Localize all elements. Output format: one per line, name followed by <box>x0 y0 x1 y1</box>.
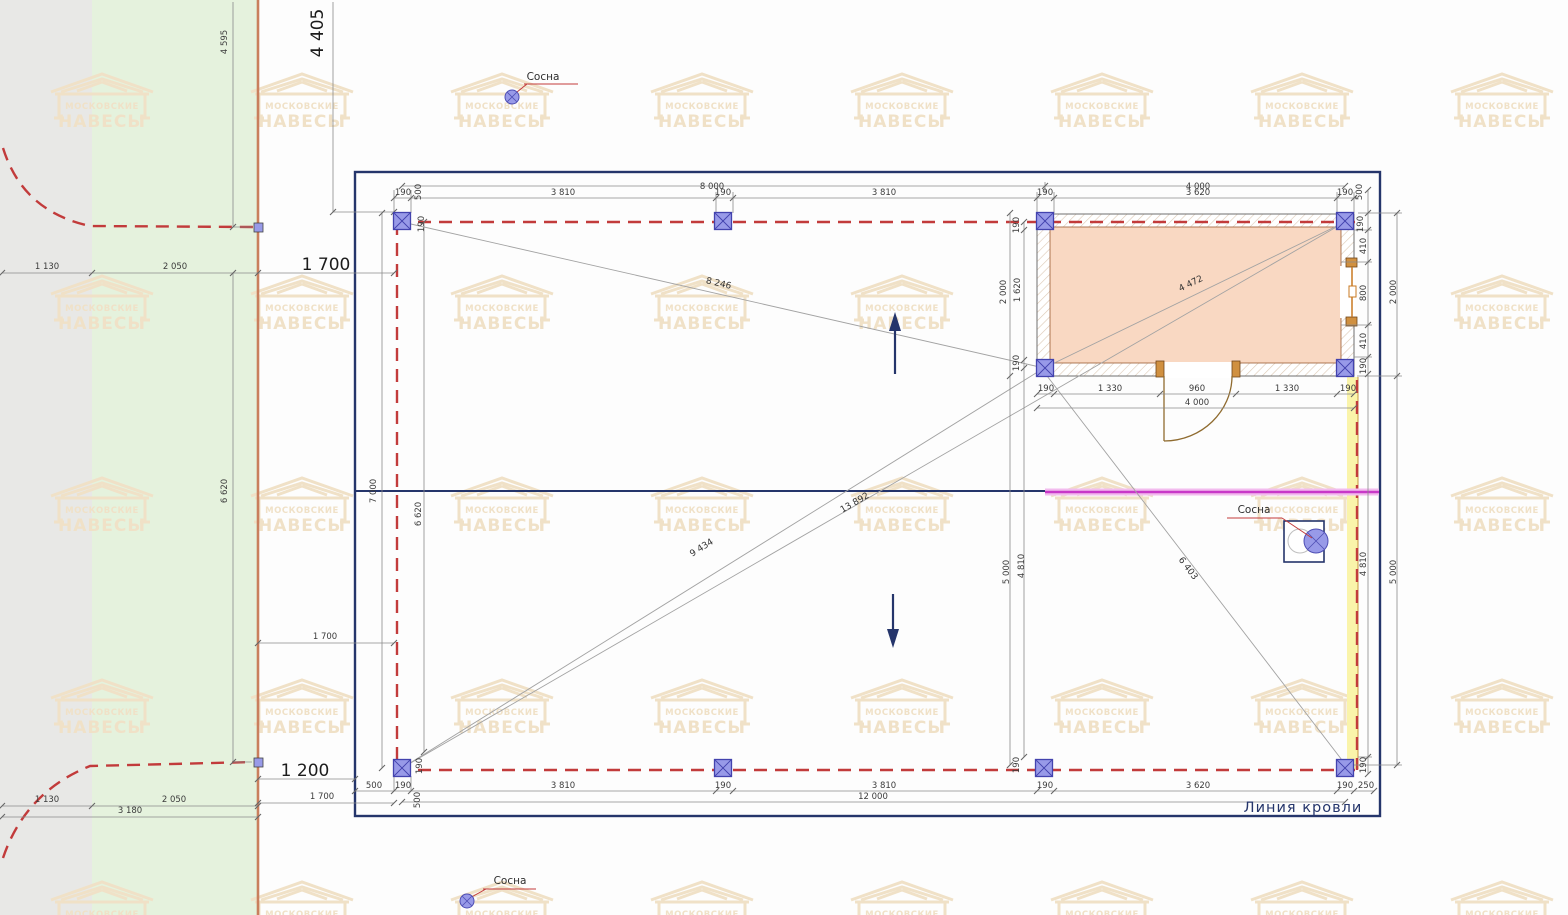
dim-label: 1 620 <box>1013 278 1023 302</box>
dim-label: 190 <box>1337 188 1353 198</box>
dim-label: 4 595 <box>220 30 230 54</box>
dim-label: 410 <box>1359 333 1369 349</box>
dim-label: 1 700 <box>313 632 337 642</box>
diagonal-label: 8 246 <box>705 276 733 292</box>
dim-label: 2 000 <box>1389 280 1399 304</box>
dim-label: 800 <box>1359 285 1369 301</box>
dim-label: 1 330 <box>1098 384 1122 394</box>
down-arrow-head <box>887 629 899 648</box>
dim-label: 410 <box>1359 238 1369 254</box>
tree-label-middle: Сосна <box>1238 504 1271 516</box>
tree-bottom: Сосна <box>460 875 536 908</box>
dim-label: 190 <box>417 216 427 232</box>
dim-label: 190 <box>1012 757 1022 773</box>
dim-label: 3 810 <box>551 188 575 198</box>
dim-label: 500 <box>1355 184 1365 200</box>
diagonal-label: 6 403 <box>1176 555 1199 582</box>
dim-label: 6 620 <box>220 479 230 503</box>
dim-label: 500 <box>413 792 423 808</box>
dim-label: 190 <box>1012 217 1022 233</box>
dim-label: 2 000 <box>999 280 1009 304</box>
dimension-labels: 8 000 4 000 190 3 810 190 3 810 190 3 62… <box>35 9 1399 816</box>
dim-label: 190 <box>395 781 411 791</box>
tree-top: Сосна <box>505 71 578 104</box>
diagonal-label: 9 434 <box>688 537 715 559</box>
dim-label: 960 <box>1189 384 1205 394</box>
dim-label: 190 <box>1012 355 1022 371</box>
dim-label: 4 405 <box>308 9 328 58</box>
dim-label: 3 620 <box>1186 188 1210 198</box>
dim-label: 190 <box>415 758 425 774</box>
dim-label: 3 810 <box>872 188 896 198</box>
dim-label: 1 130 <box>35 262 59 272</box>
tree-middle: Сосна <box>1227 504 1328 562</box>
dim-label: 250 <box>1358 781 1374 791</box>
dim-label: 190 <box>1037 781 1053 791</box>
door-jamb-left <box>1156 361 1164 377</box>
tree-label-top: Сосна <box>527 71 560 83</box>
dim-label: 190 <box>1359 757 1369 773</box>
dim-label: 7 000 <box>369 479 379 503</box>
dim-label: 12 000 <box>858 792 888 802</box>
dim-label: 4 000 <box>1185 398 1209 408</box>
dim-label: 2 050 <box>162 795 186 805</box>
up-arrow-head <box>889 312 901 331</box>
dim-label: 5 000 <box>1389 560 1399 584</box>
site-plan-canvas: МОСКОВСКИЕНАВЕСЫМОСКОВСКИЕНАВЕСЫМОСКОВСК… <box>0 0 1568 915</box>
dim-label: 1 130 <box>35 795 59 805</box>
dim-label: 1 330 <box>1275 384 1299 394</box>
door-opening <box>1164 362 1232 378</box>
plan-drawing: Сосна Сосна Сосна 8 000 4 000 <box>0 0 1568 915</box>
dim-label: 500 <box>366 781 382 791</box>
dim-label: 3 620 <box>1186 781 1210 791</box>
boundary-node-top <box>254 223 263 232</box>
diagonal-label: 13 892 <box>839 491 871 515</box>
dim-label: 3 810 <box>551 781 575 791</box>
dim-label: 190 <box>1037 188 1053 198</box>
dim-label: 190 <box>1337 781 1353 791</box>
dim-label: 190 <box>715 781 731 791</box>
dim-label: 4 810 <box>1359 552 1369 576</box>
tree-label-bottom: Сосна <box>494 875 527 887</box>
dim-label: 500 <box>414 184 424 200</box>
dim-label: 190 <box>1340 384 1356 394</box>
dim-label: 3 810 <box>872 781 896 791</box>
dim-label: 3 180 <box>118 806 142 816</box>
dim-label: 2 050 <box>163 262 187 272</box>
dim-label: 4 810 <box>1017 554 1027 578</box>
dim-label: 5 000 <box>1002 560 1012 584</box>
dim-label: 6 620 <box>414 502 424 526</box>
dim-label: 190 <box>1356 216 1366 232</box>
dim-label: 190 <box>395 188 411 198</box>
dim-label: 1 700 <box>310 792 334 802</box>
window <box>1340 258 1357 326</box>
dim-label: 1 700 <box>302 255 351 275</box>
roof-line-caption: Линия кровли <box>1244 800 1363 816</box>
dim-label: 190 <box>1359 358 1369 374</box>
door-jamb-right <box>1232 361 1240 377</box>
dim-label: 190 <box>1038 384 1054 394</box>
boundary-node-bottom <box>254 758 263 767</box>
dim-label: 1 200 <box>281 761 330 781</box>
dim-label: 190 <box>715 188 731 198</box>
dimension-lines <box>0 2 1402 820</box>
